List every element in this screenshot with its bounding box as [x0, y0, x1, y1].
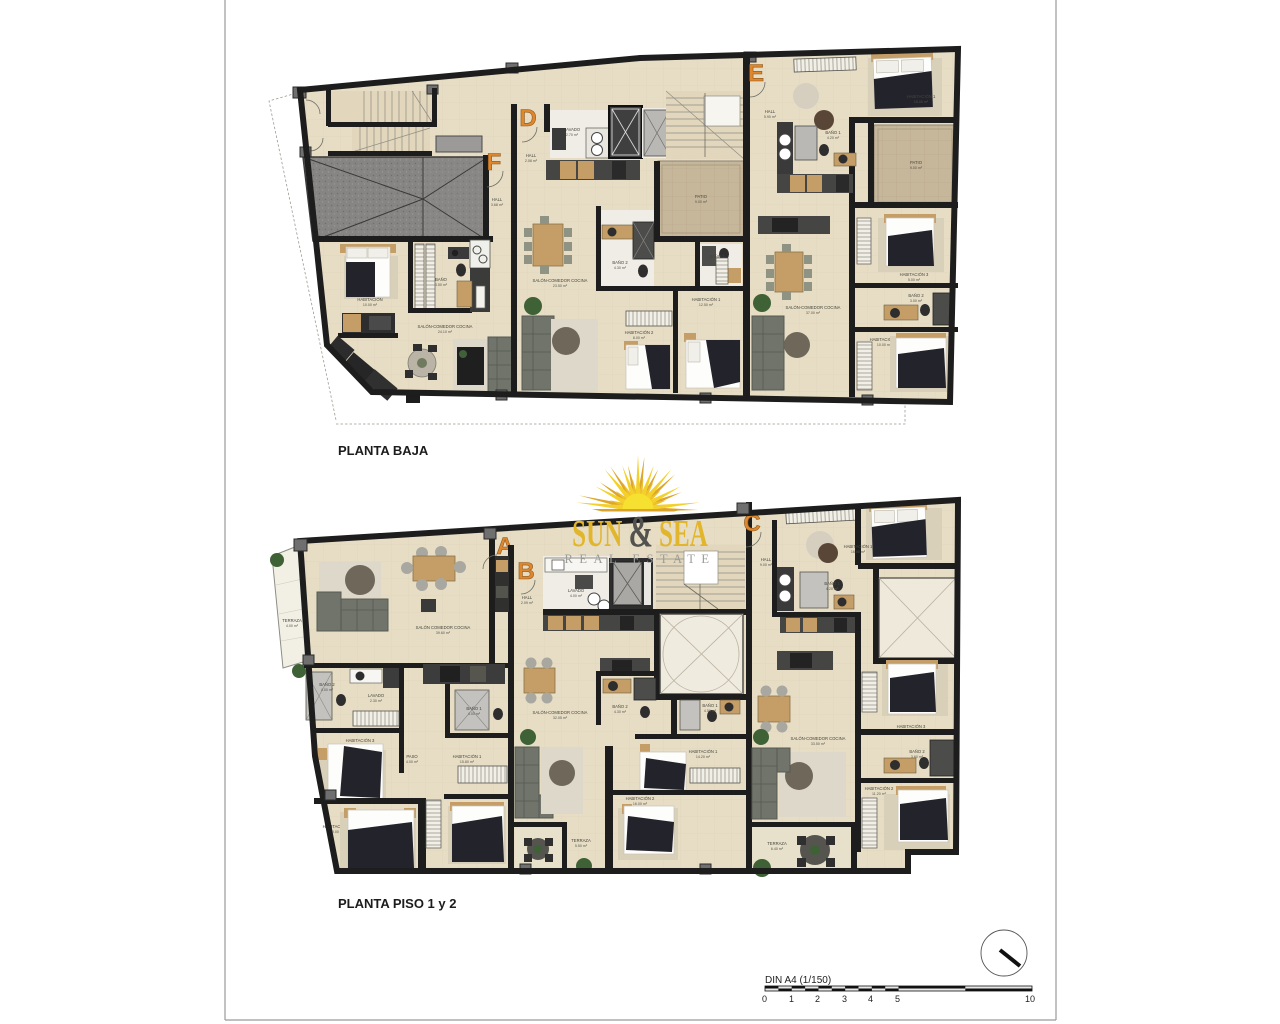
- svg-text:HALL: HALL: [765, 109, 776, 114]
- svg-text:39.60 m²: 39.60 m²: [436, 631, 451, 635]
- svg-text:SALÓN-COMEDOR COCINA: SALÓN-COMEDOR COCINA: [791, 736, 846, 741]
- svg-text:3.00 m²: 3.00 m²: [910, 299, 923, 303]
- svg-text:LAVADO: LAVADO: [564, 127, 581, 132]
- svg-text:10.00 m²: 10.00 m²: [877, 343, 892, 347]
- svg-text:10: 10: [1025, 994, 1035, 1004]
- svg-text:4.00 m²: 4.00 m²: [321, 688, 334, 692]
- svg-text:SALÓN-COMEDOR COCINA: SALÓN-COMEDOR COCINA: [786, 305, 841, 310]
- svg-text:HALL: HALL: [522, 595, 533, 600]
- svg-text:BAÑO 1: BAÑO 1: [825, 130, 841, 135]
- svg-text:HABITACIÓN 3: HABITACIÓN 3: [346, 738, 375, 743]
- svg-text:HABITACIÓN 1: HABITACIÓN 1: [692, 297, 721, 302]
- svg-text:HABITACIÓN 2: HABITACIÓN 2: [625, 330, 654, 335]
- svg-text:3.60 m²: 3.60 m²: [911, 755, 924, 759]
- svg-text:4.30 m²: 4.30 m²: [614, 266, 627, 270]
- svg-text:5.90 m²: 5.90 m²: [764, 115, 777, 119]
- svg-text:BAÑO 1: BAÑO 1: [824, 581, 840, 586]
- svg-text:2: 2: [815, 994, 820, 1004]
- svg-text:2.30 m²: 2.30 m²: [370, 699, 383, 703]
- svg-text:14.20 m²: 14.20 m²: [696, 755, 711, 759]
- svg-text:15.00 m²: 15.00 m²: [914, 100, 929, 104]
- svg-text:SALÓN COMEDOR COCINA: SALÓN COMEDOR COCINA: [416, 625, 471, 630]
- svg-text:HALL: HALL: [492, 197, 503, 202]
- svg-text:E: E: [748, 60, 764, 87]
- svg-text:9.00 m²: 9.00 m²: [910, 166, 923, 170]
- svg-text:4.30 m²: 4.30 m²: [614, 710, 627, 714]
- svg-text:4.00 m²: 4.00 m²: [406, 760, 419, 764]
- svg-text:SALÓN-COMEDOR COCINA: SALÓN-COMEDOR COCINA: [533, 710, 588, 715]
- svg-text:4.20 m²: 4.20 m²: [827, 136, 840, 140]
- svg-text:HABITACIÓN: HABITACIÓN: [357, 297, 382, 302]
- svg-text:BAÑO 2: BAÑO 2: [319, 682, 335, 687]
- svg-text:33.50 m²: 33.50 m²: [811, 742, 826, 746]
- svg-text:24.10 m²: 24.10 m²: [438, 330, 453, 334]
- svg-text:4.20 m²: 4.20 m²: [826, 587, 839, 591]
- svg-text:HABITACIÓN 2: HABITACIÓN 2: [865, 786, 894, 791]
- svg-text:HABITACIÓN 1: HABITACIÓN 1: [453, 754, 482, 759]
- svg-text:PLANTA PISO 1 y 2: PLANTA PISO 1 y 2: [338, 896, 456, 911]
- svg-text:DIN A4 (1/150): DIN A4 (1/150): [765, 975, 831, 986]
- svg-text:4.00 m²: 4.00 m²: [286, 624, 299, 628]
- svg-text:4: 4: [868, 994, 873, 1004]
- svg-text:PASO: PASO: [406, 754, 418, 759]
- svg-text:HABITACIÓN 1: HABITACIÓN 1: [907, 94, 936, 99]
- svg-text:PLANTA BAJA: PLANTA BAJA: [338, 443, 429, 458]
- svg-text:BAÑO 2: BAÑO 2: [612, 260, 628, 265]
- svg-text:F: F: [487, 149, 502, 176]
- svg-text:3: 3: [842, 994, 847, 1004]
- svg-text:9.00 m²: 9.00 m²: [695, 200, 708, 204]
- svg-text:12.50 m²: 12.50 m²: [699, 303, 714, 307]
- svg-text:B: B: [517, 558, 534, 585]
- svg-text:6.40 m²: 6.40 m²: [771, 847, 784, 851]
- svg-text:HABITACIÓN 2: HABITACIÓN 2: [626, 796, 655, 801]
- svg-text:BAÑO 1: BAÑO 1: [702, 703, 718, 708]
- svg-text:SUN & SEA: SUN & SEA: [572, 508, 708, 556]
- svg-text:HALL: HALL: [761, 557, 772, 562]
- svg-text:HABITACIÓN 3: HABITACIÓN 3: [900, 272, 929, 277]
- svg-text:5.00 m²: 5.00 m²: [908, 278, 921, 282]
- svg-text:SALÓN-COMEDOR COCINA: SALÓN-COMEDOR COCINA: [533, 278, 588, 283]
- svg-text:REAL ESTATE: REAL ESTATE: [565, 552, 716, 566]
- svg-text:BAÑO 2: BAÑO 2: [909, 749, 925, 754]
- svg-text:LAVADO: LAVADO: [568, 588, 585, 593]
- svg-text:4.00 m²: 4.00 m²: [468, 712, 481, 716]
- svg-text:15.80 m²: 15.80 m²: [460, 760, 475, 764]
- svg-text:16.00 m²: 16.00 m²: [851, 550, 866, 554]
- svg-text:HALL: HALL: [526, 153, 537, 158]
- svg-text:HABITACIÓN 1: HABITACIÓN 1: [844, 544, 873, 549]
- svg-text:HABITACIÓN 3: HABITACIÓN 3: [897, 724, 926, 729]
- svg-text:8.00 m²: 8.00 m²: [633, 336, 646, 340]
- svg-text:3.50 m²: 3.50 m²: [435, 283, 448, 287]
- svg-text:LAVADO: LAVADO: [368, 693, 385, 698]
- svg-text:0: 0: [762, 994, 767, 1004]
- svg-text:32.05 m²: 32.05 m²: [553, 716, 568, 720]
- svg-text:TERRAZA: TERRAZA: [282, 618, 302, 623]
- svg-text:BAÑO 1: BAÑO 1: [466, 706, 482, 711]
- svg-text:5.50 m²: 5.50 m²: [575, 844, 588, 848]
- svg-text:PATIO: PATIO: [910, 160, 923, 165]
- svg-text:TERRAZA: TERRAZA: [571, 838, 591, 843]
- svg-text:PATIO: PATIO: [695, 194, 708, 199]
- svg-text:TERRAZA: TERRAZA: [767, 841, 787, 846]
- svg-text:4.50 m²: 4.50 m²: [704, 709, 717, 713]
- svg-text:BAÑO 2: BAÑO 2: [612, 704, 628, 709]
- svg-text:1: 1: [789, 994, 794, 1004]
- svg-text:D: D: [519, 105, 536, 132]
- svg-text:9.00 m²: 9.00 m²: [760, 563, 773, 567]
- svg-text:HABITACIÓN 1: HABITACIÓN 1: [689, 749, 718, 754]
- svg-text:37.00 m²: 37.00 m²: [806, 311, 821, 315]
- svg-text:SALÓN-COMEDOR COCINA: SALÓN-COMEDOR COCINA: [418, 324, 473, 329]
- svg-text:3.68 m²: 3.68 m²: [491, 203, 504, 207]
- svg-text:5: 5: [895, 994, 900, 1004]
- svg-text:2.09 m²: 2.09 m²: [521, 601, 534, 605]
- svg-text:16.00 m²: 16.00 m²: [633, 802, 648, 806]
- svg-text:4.00 m²: 4.00 m²: [570, 594, 583, 598]
- svg-text:BAÑO 2: BAÑO 2: [908, 293, 924, 298]
- svg-text:2.08 m²: 2.08 m²: [525, 159, 538, 163]
- svg-text:10.00 m²: 10.00 m²: [363, 303, 378, 307]
- svg-text:BAÑO: BAÑO: [435, 277, 448, 282]
- svg-text:23.50 m²: 23.50 m²: [553, 284, 568, 288]
- svg-text:2.70 m²: 2.70 m²: [566, 133, 579, 137]
